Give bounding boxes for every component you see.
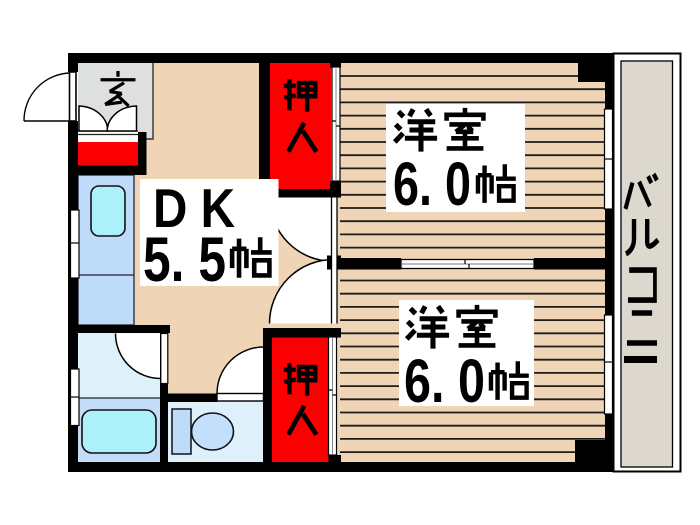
svg-text:5. 5: 5. 5 [143,225,226,295]
svg-text:6. 0: 6. 0 [393,150,471,218]
svg-text:6. 0: 6. 0 [404,347,485,415]
